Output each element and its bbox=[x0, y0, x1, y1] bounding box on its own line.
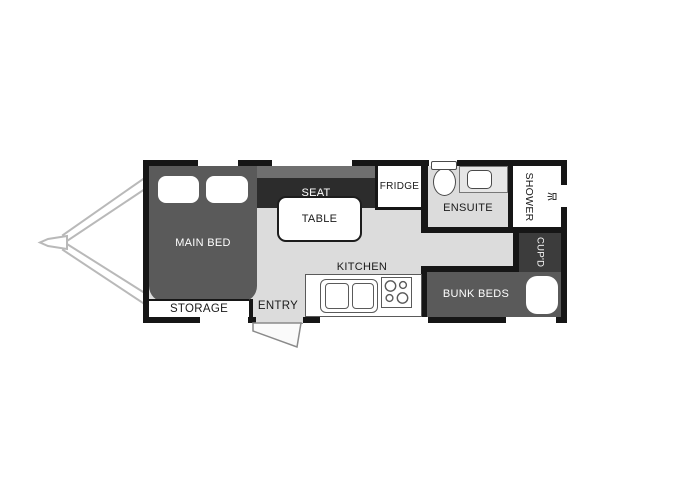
window-gap bbox=[506, 317, 556, 323]
toilet-icon bbox=[431, 161, 457, 170]
window-gap bbox=[561, 185, 567, 207]
ensuite-label: ENSUITE bbox=[428, 201, 508, 215]
window-gap bbox=[320, 317, 428, 323]
wall-segment bbox=[421, 166, 428, 233]
cupboard-area: CUP'D bbox=[519, 233, 561, 272]
pillow-icon bbox=[206, 176, 248, 203]
main-bed-label: MAIN BED bbox=[149, 236, 257, 250]
entry-door-opening bbox=[256, 317, 303, 324]
shower-head-icon bbox=[545, 190, 558, 203]
stove-burners-icon bbox=[381, 277, 412, 308]
kitchen-label: KITCHEN bbox=[322, 260, 402, 273]
toilet-bowl-icon bbox=[433, 168, 456, 196]
sink-basin bbox=[352, 283, 374, 309]
shower-area: SHOWER bbox=[513, 166, 561, 227]
storage-label: STORAGE bbox=[170, 303, 228, 315]
entry-label: ENTRY bbox=[253, 298, 303, 314]
sink-basin bbox=[325, 283, 349, 309]
floorplan-canvas: MAIN BED SEAT TABLE FRIDGE ENSUITE SHOWE… bbox=[0, 0, 700, 483]
pillow-icon bbox=[526, 276, 558, 314]
bunk-beds-label: BUNK BEDS bbox=[430, 287, 522, 301]
fridge-area: FRIDGE bbox=[375, 166, 421, 210]
storage-area: STORAGE bbox=[149, 299, 249, 317]
table-area: TABLE bbox=[277, 196, 362, 242]
window-gap bbox=[200, 317, 248, 323]
sink-icon bbox=[467, 170, 492, 189]
table-label: TABLE bbox=[302, 213, 338, 225]
seat-backrest bbox=[257, 166, 375, 178]
pillow-icon bbox=[158, 176, 199, 203]
shower-label: SHOWER bbox=[523, 172, 535, 221]
cupboard-label: CUP'D bbox=[535, 237, 546, 267]
fridge-label: FRIDGE bbox=[380, 181, 420, 192]
